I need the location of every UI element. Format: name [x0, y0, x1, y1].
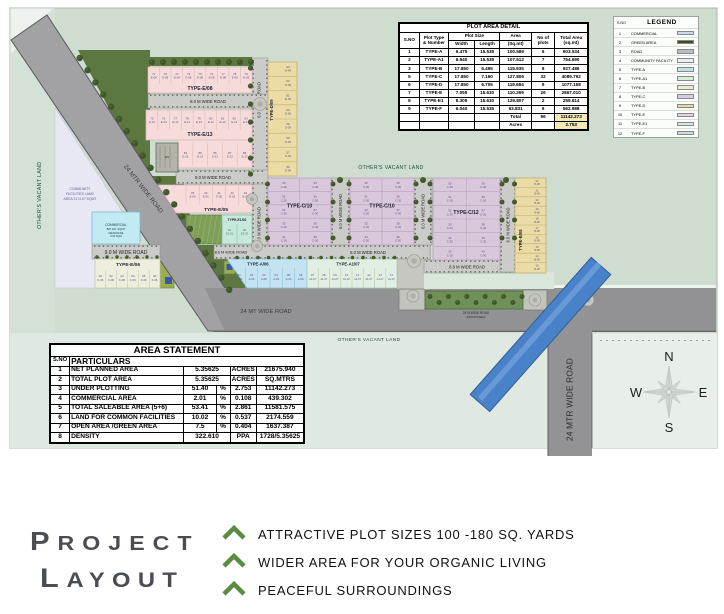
svg-text:B-08: B-08 [534, 257, 540, 261]
svg-text:S: S [665, 420, 674, 435]
svg-text:OTHER'S VACANT LAND: OTHER'S VACANT LAND [37, 162, 43, 230]
svg-text:A-06: A-06 [273, 277, 279, 281]
svg-text:8.0 M WIDE ROAD: 8.0 M WIDE ROAD [195, 175, 231, 180]
svg-text:8.0 M WIDE ROAD: 8.0 M WIDE ROAD [190, 99, 226, 104]
svg-text:F-06: F-06 [119, 278, 125, 282]
svg-text:B-08: B-08 [534, 220, 540, 224]
svg-text:92: 92 [243, 228, 247, 232]
svg-text:13: 13 [378, 273, 382, 277]
svg-text:14: 14 [390, 273, 394, 277]
svg-text:C-30: C-30 [363, 225, 370, 229]
svg-text:F-06: F-06 [98, 278, 104, 282]
svg-text:E-05: E-05 [203, 195, 209, 199]
svg-text:C-30: C-30 [395, 239, 402, 243]
svg-text:TYPE-E1/02: TYPE-E1/02 [228, 218, 247, 222]
svg-text:COMMUNITY: COMMUNITY [70, 187, 92, 191]
svg-text:A-06: A-06 [298, 277, 304, 281]
svg-text:E-13: E-13 [220, 120, 226, 124]
svg-text:C-30: C-30 [395, 212, 402, 216]
svg-text:6.0 M WIDE ROAD: 6.0 M WIDE ROAD [421, 194, 426, 229]
svg-text:TYPE-D/09: TYPE-D/09 [269, 99, 274, 121]
svg-text:6.0 M WIDE ROAD: 6.0 M WIDE ROAD [257, 207, 262, 243]
svg-text:8.6 M WIDE ROAD: 8.6 M WIDE ROAD [449, 264, 485, 269]
svg-text:TYPE-C/12: TYPE-C/12 [453, 210, 479, 216]
svg-text:TYPE-A1/07: TYPE-A1/07 [336, 262, 360, 267]
svg-text:TYPE-E/13: TYPE-E/13 [187, 132, 212, 138]
svg-text:C-30: C-30 [363, 198, 370, 202]
svg-text:E-08: E-08 [243, 76, 249, 80]
svg-text:D-09: D-09 [285, 69, 292, 73]
svg-text:A-06: A-06 [236, 277, 242, 281]
svg-text:6.0 M WIDE ROAD: 6.0 M WIDE ROAD [338, 194, 343, 229]
svg-text:E-08: E-08 [151, 76, 157, 80]
svg-text:E-08: E-08 [185, 76, 191, 80]
svg-text:C-30: C-30 [281, 198, 288, 202]
svg-text:(PROPOSED): (PROPOSED) [466, 315, 485, 319]
svg-text:C-30: C-30 [447, 240, 454, 244]
svg-text:C-30: C-30 [363, 185, 370, 189]
svg-text:D-09: D-09 [285, 83, 292, 87]
svg-text:B-08: B-08 [534, 248, 540, 252]
svg-text:E-13: E-13 [208, 120, 214, 124]
svg-text:08: 08 [322, 273, 326, 277]
svg-text:B-08: B-08 [534, 210, 540, 214]
svg-text:B/P 331 SQMT: B/P 331 SQMT [107, 227, 126, 231]
svg-text:TYPE-E/05: TYPE-E/05 [204, 207, 228, 213]
svg-text:E-13: E-13 [242, 155, 248, 159]
svg-text:C-30: C-30 [447, 226, 454, 230]
svg-text:E-13: E-13 [172, 120, 178, 124]
svg-text:D-09: D-09 [285, 168, 292, 172]
svg-text:TYPE-E/08: TYPE-E/08 [187, 86, 212, 92]
svg-text:6.0 M WIDE ROAD: 6.0 M WIDE ROAD [506, 207, 511, 242]
svg-text:E-13: E-13 [196, 120, 202, 124]
svg-text:E-05: E-05 [190, 195, 196, 199]
svg-text:8.0 M WIDE ROAD: 8.0 M WIDE ROAD [350, 250, 386, 255]
svg-text:C-30: C-30 [480, 212, 487, 216]
svg-text:ES: ES [165, 155, 169, 159]
svg-text:24 MTR WIDE ROAD: 24 MTR WIDE ROAD [565, 358, 575, 441]
svg-text:C-30: C-30 [480, 253, 487, 257]
svg-text:E-08: E-08 [232, 76, 238, 80]
svg-text:E-13: E-13 [212, 155, 218, 159]
svg-text:F-06: F-06 [141, 278, 147, 282]
svg-text:TYPE-B/08: TYPE-B/08 [518, 229, 523, 251]
svg-text:E-13: E-13 [227, 155, 233, 159]
svg-text:C-30: C-30 [281, 185, 288, 189]
svg-text:E-08: E-08 [197, 76, 203, 80]
svg-text:A-06: A-06 [261, 277, 267, 281]
svg-text:C-30: C-30 [447, 212, 454, 216]
svg-text:TYPE-A/06: TYPE-A/06 [247, 262, 269, 267]
svg-text:C-30: C-30 [447, 253, 454, 257]
svg-text:B-08: B-08 [534, 192, 540, 196]
svg-text:91: 91 [228, 228, 232, 232]
svg-text:FACILITIES LAND: FACILITIES LAND [66, 192, 94, 196]
svg-text:C-30: C-30 [312, 239, 319, 243]
svg-text:D-09: D-09 [285, 111, 292, 115]
svg-text:E-13: E-13 [197, 155, 203, 159]
svg-text:12: 12 [367, 273, 371, 277]
svg-text:E-05: E-05 [216, 195, 222, 199]
svg-text:F-06: F-06 [152, 278, 158, 282]
svg-text:C-30: C-30 [447, 199, 454, 203]
svg-text:E-13: E-13 [184, 120, 190, 124]
svg-text:24 MT WIDE ROAD: 24 MT WIDE ROAD [240, 309, 291, 315]
svg-text:E-13: E-13 [161, 120, 167, 124]
svg-text:TYPE-E/06: TYPE-E/06 [116, 262, 140, 268]
svg-text:C-30: C-30 [312, 198, 319, 202]
svg-text:TYPE-C/10: TYPE-C/10 [287, 204, 313, 210]
svg-text:W: W [630, 385, 643, 400]
svg-text:A1-07: A1-07 [354, 277, 361, 281]
svg-text:A1-07: A1-07 [343, 277, 350, 281]
svg-text:C-30: C-30 [363, 239, 370, 243]
svg-text:OTHER'S VACANT LAND: OTHER'S VACANT LAND [338, 337, 401, 343]
svg-text:11: 11 [356, 273, 359, 277]
svg-text:A1-07: A1-07 [309, 277, 316, 281]
svg-text:E-13: E-13 [149, 120, 155, 124]
svg-text:A1-07: A1-07 [388, 277, 395, 281]
svg-text:C-30: C-30 [480, 240, 487, 244]
svg-text:F-06: F-06 [130, 278, 136, 282]
svg-text:A1-07: A1-07 [332, 277, 339, 281]
svg-text:E-08: E-08 [162, 76, 168, 80]
svg-text:N: N [664, 349, 673, 364]
svg-text:3.00 SQM: 3.00 SQM [110, 234, 122, 238]
svg-text:C-30: C-30 [395, 225, 402, 229]
svg-text:C-30: C-30 [312, 225, 319, 229]
svg-text:C-30: C-30 [447, 185, 454, 189]
svg-text:B-08: B-08 [534, 182, 540, 186]
svg-text:TYPE-C/10: TYPE-C/10 [369, 204, 395, 210]
svg-text:B-08: B-08 [534, 201, 540, 205]
svg-text:9.0 M WIDE ROAD: 9.0 M WIDE ROAD [105, 250, 148, 256]
svg-text:D-09: D-09 [285, 154, 292, 158]
svg-text:OTHER'S VACANT LAND: OTHER'S VACANT LAND [358, 165, 423, 171]
svg-text:E1-01: E1-01 [226, 231, 233, 235]
svg-text:09: 09 [333, 273, 337, 277]
svg-text:A1-07: A1-07 [365, 277, 372, 281]
svg-text:C-30: C-30 [480, 226, 487, 230]
svg-text:C-30: C-30 [395, 198, 402, 202]
svg-text:E: E [699, 385, 708, 400]
svg-text:C-30: C-30 [312, 185, 319, 189]
svg-text:E1-02: E1-02 [241, 231, 248, 235]
svg-text:C-30: C-30 [281, 225, 288, 229]
svg-text:C-30: C-30 [281, 239, 288, 243]
svg-text:E-08: E-08 [174, 76, 180, 80]
svg-text:C-30: C-30 [480, 185, 487, 189]
svg-text:D-09: D-09 [285, 97, 292, 101]
svg-text:07: 07 [311, 273, 315, 277]
svg-text:B-08: B-08 [534, 229, 540, 233]
svg-text:E-08: E-08 [220, 76, 226, 80]
svg-text:10: 10 [345, 273, 349, 277]
svg-text:C-30: C-30 [363, 212, 370, 216]
svg-text:C-30: C-30 [395, 185, 402, 189]
svg-text:E-13: E-13 [231, 120, 237, 124]
svg-text:AREA 2174.07 SQMT: AREA 2174.07 SQMT [64, 197, 97, 201]
svg-text:F-06: F-06 [108, 278, 114, 282]
svg-text:A1-07: A1-07 [377, 277, 384, 281]
svg-text:8.6 M WIDE ROAD: 8.6 M WIDE ROAD [215, 251, 248, 255]
svg-text:A1-07: A1-07 [320, 277, 327, 281]
svg-text:B-08: B-08 [534, 239, 540, 243]
svg-text:D-09: D-09 [285, 140, 292, 144]
svg-text:C-30: C-30 [312, 212, 319, 216]
svg-text:C-30: C-30 [480, 199, 487, 203]
svg-text:E-05: E-05 [229, 195, 235, 199]
svg-text:A-06: A-06 [249, 277, 255, 281]
svg-text:E-08: E-08 [209, 76, 215, 80]
svg-text:A-06: A-06 [286, 277, 292, 281]
svg-text:C-30: C-30 [281, 212, 288, 216]
svg-text:B-08: B-08 [534, 267, 540, 271]
svg-text:E-13: E-13 [182, 155, 188, 159]
svg-text:D-09: D-09 [285, 126, 292, 130]
